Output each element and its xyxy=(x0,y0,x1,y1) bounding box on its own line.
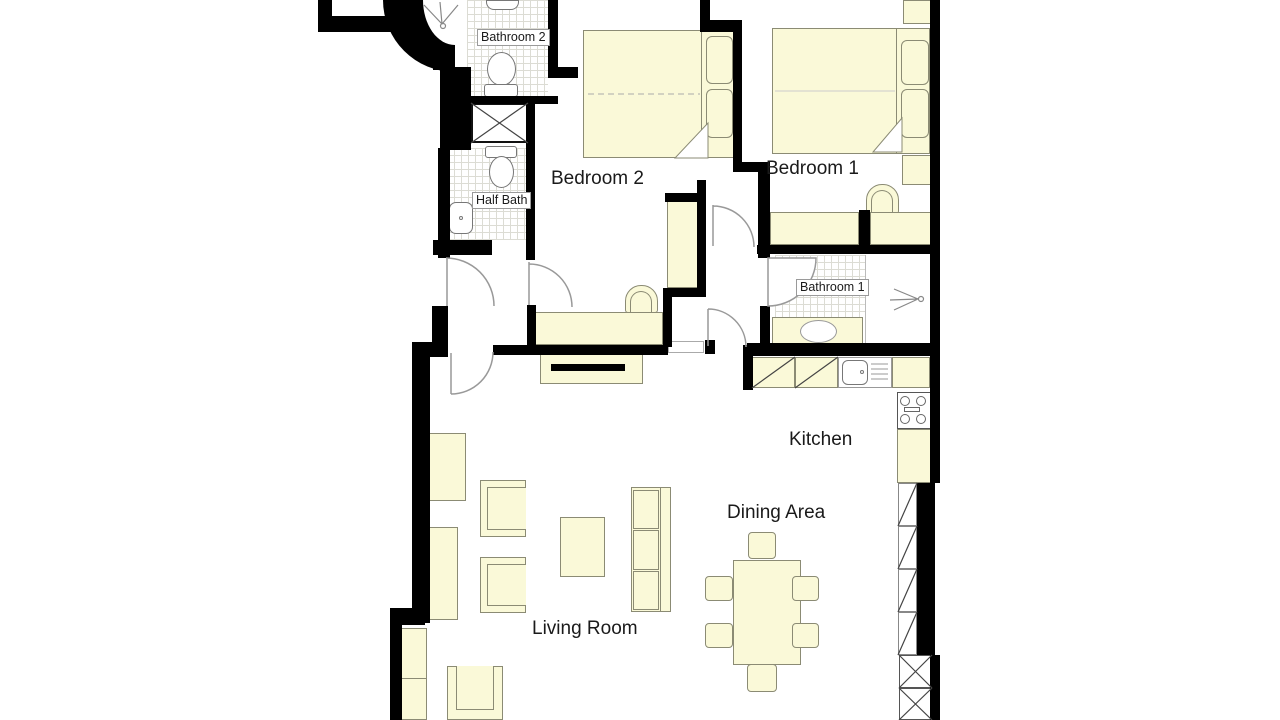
shower-spray-icon xyxy=(424,2,458,24)
room-label-bathroom1: Bathroom 1 xyxy=(796,279,869,296)
door-bedroom2 xyxy=(529,262,572,307)
room-label-dining-area: Dining Area xyxy=(727,502,825,524)
shower-spray-icons xyxy=(424,2,924,310)
annotations-overlay xyxy=(0,0,1280,720)
blanket-fold xyxy=(873,118,902,152)
door-hall-living xyxy=(708,309,746,347)
closet-diagonals xyxy=(898,483,917,655)
room-label-bedroom1: Bedroom 1 xyxy=(766,158,859,180)
blanket-folds xyxy=(675,118,902,158)
room-label-bedroom2: Bedroom 2 xyxy=(551,168,644,190)
door-entry-living xyxy=(451,352,493,394)
bed-lines xyxy=(588,91,895,379)
sink-drainer-lines xyxy=(871,364,888,379)
blanket-fold xyxy=(675,123,708,158)
shower-head-dot xyxy=(919,297,924,302)
floor-plan: Bathroom 2 Half Bath Bathroom 1 Bedroom … xyxy=(0,0,1280,720)
kitchen-cabinet-diagonals xyxy=(752,357,838,388)
door-swings xyxy=(446,205,816,394)
shower-head-dot xyxy=(441,24,446,29)
shower-spray-icon xyxy=(890,289,918,310)
room-label-bathroom2: Bathroom 2 xyxy=(477,29,550,46)
closet-x xyxy=(899,655,932,720)
door-half-bath xyxy=(446,258,494,306)
room-label-living-room: Living Room xyxy=(532,618,638,640)
shower-x xyxy=(471,103,528,143)
room-label-kitchen: Kitchen xyxy=(789,429,852,451)
door-bedroom1 xyxy=(713,205,754,247)
room-label-half-bath: Half Bath xyxy=(472,192,531,209)
